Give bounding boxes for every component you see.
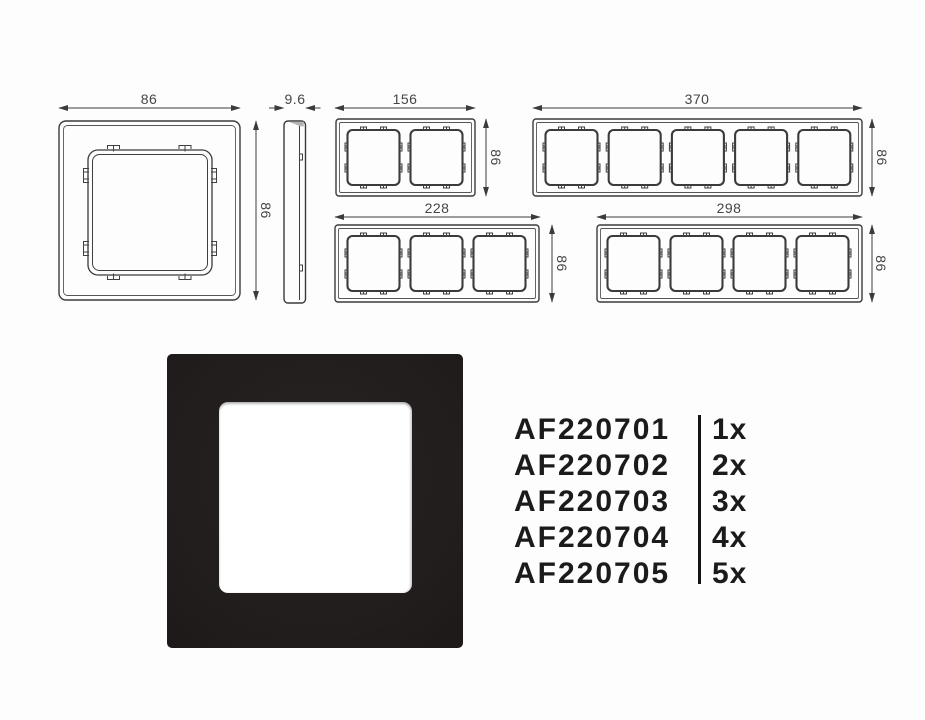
product-code: AF220703 — [514, 485, 698, 519]
single-frame-drawing — [59, 121, 240, 300]
dim-label-single-width: 86 — [141, 91, 158, 107]
product-code: AF220704 — [514, 521, 698, 555]
product-frame-window — [219, 402, 412, 593]
gang-count: 3x — [712, 485, 747, 519]
product-code: AF220705 — [514, 557, 698, 591]
product-frame-image — [167, 354, 463, 648]
dim-label-3gang-width: 228 — [425, 200, 450, 216]
frame-2gang-drawing — [336, 119, 475, 196]
gang-count: 4x — [712, 521, 747, 555]
dim-label-4gang-width: 298 — [717, 200, 742, 216]
product-code-list: AF220701 1x AF220702 2x AF220703 3x AF22… — [514, 412, 747, 592]
spec-sheet: 86 86 9.6 156 86 370 86 228 86 298 86 — [0, 0, 925, 720]
frame-5gang-drawing — [533, 119, 862, 196]
code-row: AF220704 4x — [514, 520, 747, 556]
dim-label-4gang-height: 86 — [873, 255, 889, 272]
code-row: AF220703 3x — [514, 484, 747, 520]
gang-count: 1x — [712, 413, 747, 447]
code-row: AF220705 5x — [514, 556, 747, 592]
product-code: AF220702 — [514, 449, 698, 483]
dim-label-5gang-height: 86 — [874, 149, 890, 166]
dim-label-depth: 9.6 — [285, 91, 306, 107]
code-row: AF220701 1x — [514, 412, 747, 448]
dim-label-3gang-height: 86 — [554, 255, 570, 272]
dim-label-5gang-width: 370 — [685, 91, 710, 107]
dim-label-single-height: 86 — [258, 202, 274, 219]
frame-3gang-drawing — [335, 225, 539, 302]
technical-drawings: 86 86 9.6 156 86 370 86 228 86 298 86 — [0, 0, 925, 335]
product-code: AF220701 — [514, 413, 698, 447]
code-row: AF220702 2x — [514, 448, 747, 484]
side-profile-drawing — [284, 121, 306, 303]
code-list-divider — [698, 415, 701, 584]
dim-label-2gang-height: 86 — [488, 149, 504, 166]
frame-4gang-drawing — [597, 225, 862, 302]
gang-count: 2x — [712, 449, 747, 483]
dim-label-2gang-width: 156 — [393, 91, 418, 107]
gang-count: 5x — [712, 557, 747, 591]
